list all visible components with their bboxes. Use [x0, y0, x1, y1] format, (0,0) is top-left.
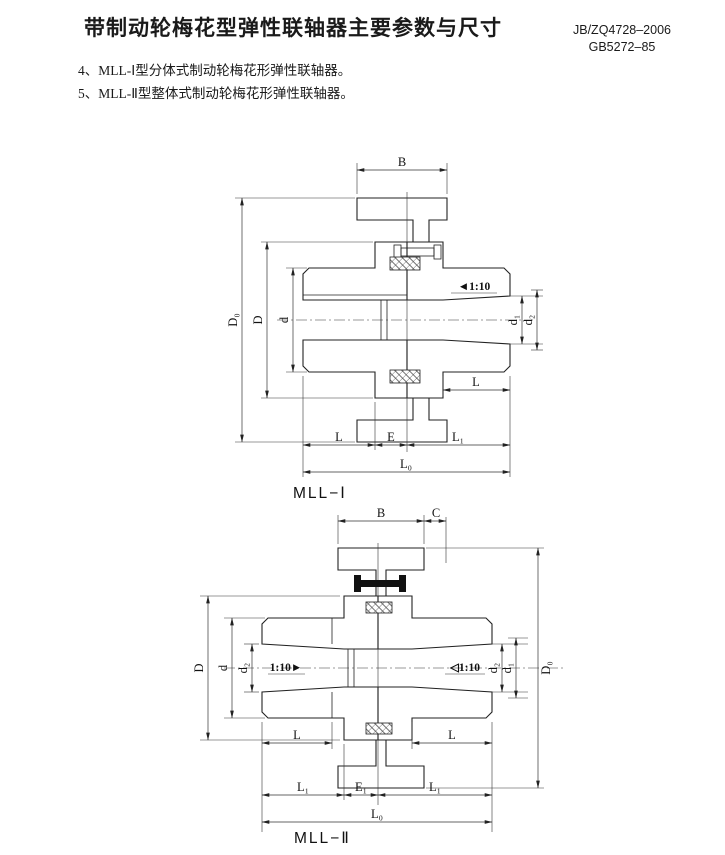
dim-label-e: E	[387, 430, 395, 444]
dim-label-d-minor2: d	[216, 664, 230, 671]
dim-label-e1: E₁	[355, 780, 367, 794]
mll-2-figure: B C D d d₂ 1:10► ◁1:10 d₂	[172, 503, 592, 848]
mll1-left-hub-bottom	[303, 340, 407, 398]
dim-label-c: C	[432, 506, 440, 520]
mll2-left-hub-top	[262, 596, 378, 649]
dim-label-l-hub: L	[472, 375, 480, 389]
dim-label-l-left: L	[293, 728, 301, 742]
document-page: 带制动轮梅花型弹性联轴器主要参数与尺寸 JB/ZQ4728–2006 GB527…	[0, 0, 725, 855]
mll2-left-hub-bottom	[262, 687, 378, 740]
dim-label-d2-left: d₂	[236, 663, 250, 674]
mll1-section-geometry	[277, 192, 533, 452]
mll2-right-hub-bottom	[378, 687, 492, 740]
dim-label-l1-right: L₁	[429, 780, 441, 794]
mll1-elastomer-top	[390, 257, 420, 270]
dim-label-l-right: L	[448, 728, 456, 742]
dim-label-b: B	[398, 155, 406, 169]
mll1-brake-rim-bottom	[357, 398, 447, 442]
mll2-section-geometry	[224, 517, 564, 805]
standard-ref-jb: JB/ZQ4728–2006	[556, 22, 688, 39]
dim-label-d0: D₀	[226, 313, 240, 326]
notes-list: 4、MLL-Ⅰ型分体式制动轮梅花形弹性联轴器。 5、MLL-Ⅱ型整体式制动轮梅花…	[78, 60, 354, 106]
mll2-elastomer-bottom	[366, 723, 392, 734]
page-title: 带制动轮梅花型弹性联轴器主要参数与尺寸	[84, 12, 502, 42]
dim-label-l0-2: L₀	[371, 807, 383, 821]
dim-label-l1-left: L₁	[297, 780, 309, 794]
taper-label-1-10: ◄1:10	[458, 281, 491, 293]
dim-label-l: L	[335, 430, 343, 444]
mll1-right-hub-bottom	[407, 340, 510, 398]
taper-label-right: ◁1:10	[449, 662, 480, 674]
mll2-brake-wheel-bottom	[338, 740, 424, 788]
figure-caption-mll2: MLL−Ⅱ	[294, 830, 351, 847]
mll1-left-hub-section	[303, 242, 407, 300]
mll-1-figure: B D₀ D d ◄1:10 d₁ d₂ L	[185, 150, 545, 505]
mll1-dimensions: B D₀ D d ◄1:10 d₁ d₂ L	[226, 155, 543, 477]
dim-label-d0-2: D₀	[539, 661, 553, 674]
dim-label-d-minor: d	[277, 316, 291, 323]
dim-label-b2: B	[377, 506, 385, 520]
mll2-brake-wheel-top	[338, 548, 424, 596]
dim-label-l1: L₁	[452, 430, 464, 444]
note-item-4: 4、MLL-Ⅰ型分体式制动轮梅花形弹性联轴器。	[78, 60, 354, 83]
mll2-elastomer-top	[366, 602, 392, 613]
dim-label-d1-2: d₁	[500, 663, 514, 674]
dim-label-d2-right: d₂	[486, 663, 500, 674]
dim-label-l0: L₀	[400, 457, 412, 471]
mll2-bolt	[354, 575, 406, 592]
figure-caption-mll1: MLL−Ⅰ	[293, 485, 347, 502]
note-item-5: 5、MLL-Ⅱ型整体式制动轮梅花形弹性联轴器。	[78, 83, 354, 106]
standard-references: JB/ZQ4728–2006 GB5272–85	[556, 22, 688, 56]
dim-label-d-major2: D	[192, 663, 206, 672]
standard-ref-gb: GB5272–85	[556, 39, 688, 56]
mll1-elastomer-bottom	[390, 370, 420, 383]
mll2-dimensions: B C D d d₂ 1:10► ◁1:10 d₂	[192, 506, 553, 832]
dim-label-d2: d₂	[521, 315, 535, 326]
dim-label-d1: d₁	[506, 315, 520, 326]
mll2-right-hub-top	[378, 596, 492, 649]
taper-label-left: 1:10►	[270, 662, 302, 674]
mll1-brake-wheel	[357, 198, 447, 242]
dim-label-d-major: D	[251, 315, 265, 324]
